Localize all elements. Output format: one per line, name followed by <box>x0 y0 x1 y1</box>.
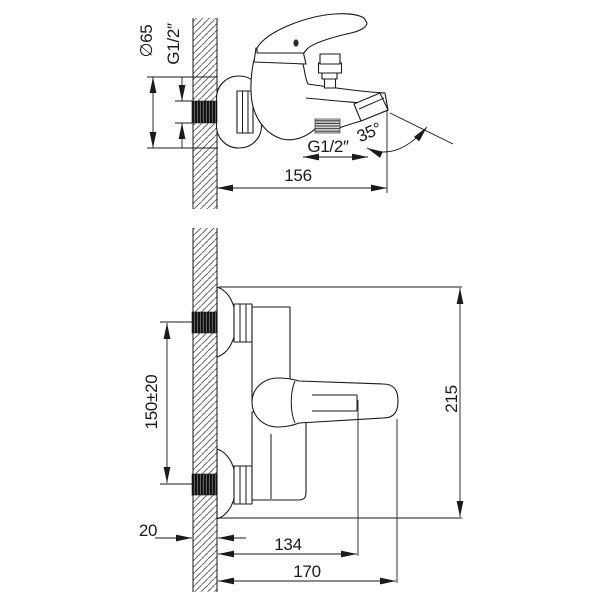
dim-overall-reach-label: 170 <box>293 562 320 581</box>
dim-wall-thread: G1/2″ <box>164 23 192 148</box>
dim-diameter-label: ∅65 <box>137 25 156 58</box>
dim-wall-thickness: 20 <box>139 521 246 540</box>
diverter-knob <box>319 54 342 88</box>
front-view: 150±20 215 20 134 170 <box>139 228 462 592</box>
dim-spout-thread-label: G1/2″ <box>307 137 349 156</box>
dim-projection-label: 156 <box>284 166 311 185</box>
bottom-escutcheon <box>217 449 236 519</box>
dim-spout-reach-label: 134 <box>274 535 301 554</box>
dim-wall-thickness-label: 20 <box>139 521 157 540</box>
wall-section-front <box>193 228 217 592</box>
faucet-installation-drawing: ∅65 G1/2″ G1/2″ 35° 156 <box>0 0 600 600</box>
dim-connection-spacing: 150±20 <box>142 322 192 484</box>
top-escutcheon <box>217 287 236 357</box>
dim-wall-thread-label: G1/2″ <box>164 23 183 65</box>
dim-overall-height-label: 215 <box>442 385 461 412</box>
wall-thread <box>192 101 217 123</box>
dim-spout-angle-label: 35° <box>354 119 384 146</box>
dim-spout-angle: 35° <box>354 113 453 152</box>
side-view: ∅65 G1/2″ G1/2″ 35° 156 <box>137 14 453 209</box>
spout-outlet-thread <box>315 119 340 133</box>
top-wall-thread <box>192 312 217 333</box>
lock-nut <box>237 91 253 133</box>
bottom-wall-thread <box>192 474 217 495</box>
top-nut <box>234 304 252 342</box>
handle-lever <box>257 14 367 53</box>
dim-connection-spacing-label: 150±20 <box>142 375 161 430</box>
handle-front <box>252 378 398 427</box>
technical-drawing-page: ∅65 G1/2″ G1/2″ 35° 156 <box>0 0 600 600</box>
bottom-nut <box>234 466 252 504</box>
handle-logo-dot <box>293 39 298 46</box>
